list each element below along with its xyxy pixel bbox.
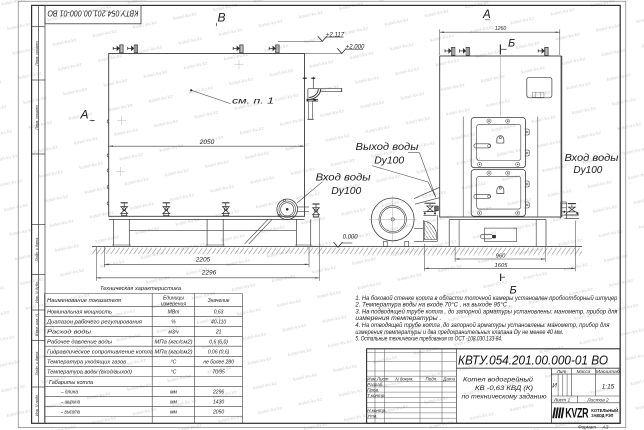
svg-text:2296: 2296 bbox=[201, 270, 217, 277]
svg-text:Значение: Значение bbox=[208, 298, 230, 304]
svg-text:– высота: – высота bbox=[60, 410, 80, 416]
svg-text:°С: °С bbox=[171, 360, 177, 366]
svg-text:°С: °С bbox=[171, 370, 177, 376]
svg-text:МВт: МВт bbox=[168, 310, 180, 316]
svg-text:2296: 2296 bbox=[212, 390, 224, 396]
svg-text:А: А bbox=[80, 108, 89, 122]
svg-text:Вход воды: Вход воды bbox=[565, 153, 620, 164]
svg-text:см. п. 1: см. п. 1 bbox=[232, 96, 274, 106]
svg-text:2205: 2205 bbox=[195, 256, 211, 263]
svg-text:Т.контр.: Т.контр. bbox=[367, 393, 385, 398]
svg-text:Котел водогрейный: Котел водогрейный bbox=[463, 375, 533, 383]
svg-text:м3/ч: м3/ч bbox=[168, 330, 179, 336]
svg-text:Техническая характеристика: Техническая характеристика bbox=[100, 286, 182, 292]
svg-text:Листов 2: Листов 2 bbox=[586, 398, 609, 404]
svg-text:Dy100: Dy100 bbox=[573, 165, 602, 176]
svg-text:0,06 (0,6): 0,06 (0,6) bbox=[208, 350, 230, 356]
svg-text:Масштаб: Масштаб bbox=[596, 369, 620, 374]
svg-text:Пров.: Пров. bbox=[367, 387, 379, 392]
svg-text:Подп. и дата: Подп. и дата bbox=[35, 238, 39, 262]
svg-text:КВТУ.054.201.00.000-01 ВО: КВТУ.054.201.00.000-01 ВО bbox=[458, 353, 608, 368]
svg-text:Н.контр.: Н.контр. bbox=[367, 408, 386, 413]
svg-text:Расход воды: Расход воды bbox=[47, 330, 91, 336]
svg-text:+2.117: +2.117 bbox=[326, 33, 345, 39]
svg-text:Перв. примен.: Перв. примен. bbox=[35, 104, 39, 129]
svg-text:Гидравлическое сопротивление к: Гидравлическое сопротивление котла bbox=[47, 350, 153, 356]
svg-text:КОТЕЛЬНЫЙ: КОТЕЛЬНЫЙ bbox=[591, 408, 618, 413]
svg-text:%: % bbox=[171, 320, 176, 326]
svg-text:3. На подводящей трубе котла: 3. На подводящей трубе котла , до запорн… bbox=[355, 308, 618, 315]
svg-text:Изм.Лист: Изм.Лист bbox=[367, 377, 388, 382]
svg-text:Формат: Формат bbox=[578, 424, 596, 430]
svg-text:Перв. примен.: Перв. примен. bbox=[35, 40, 39, 65]
svg-text:1430: 1430 bbox=[213, 400, 224, 406]
svg-text:2050: 2050 bbox=[212, 410, 224, 416]
svg-text:Подп.: Подп. bbox=[426, 377, 438, 382]
svg-text:МПа (кгс/см2): МПа (кгс/см2) bbox=[155, 340, 193, 346]
svg-text:КВ -0,63 КВД (К): КВ -0,63 КВД (К) bbox=[475, 385, 533, 392]
svg-text:Dy100: Dy100 bbox=[331, 185, 361, 197]
svg-text:Лист 1: Лист 1 bbox=[553, 398, 571, 404]
svg-text:– ширина: – ширина bbox=[60, 400, 80, 406]
svg-text:Номинальная мощность: Номинальная мощность bbox=[47, 310, 112, 316]
svg-text:N докум.: N докум. bbox=[395, 377, 413, 382]
svg-text:Диапазон рабочего регулировани: Диапазон рабочего регулирования bbox=[46, 320, 143, 326]
svg-text:0.000: 0.000 bbox=[343, 235, 359, 241]
svg-text:Инв. N дубл.: Инв. N дубл. bbox=[35, 281, 39, 303]
svg-text:Подп. и дата: Подп. и дата bbox=[35, 352, 39, 376]
svg-text:ЗАВОД РЭП: ЗАВОД РЭП bbox=[591, 413, 613, 418]
svg-text:1260: 1260 bbox=[495, 26, 507, 32]
svg-text:Масса: Масса bbox=[577, 369, 591, 374]
svg-text:2050: 2050 bbox=[199, 139, 215, 146]
svg-text:мм: мм bbox=[170, 390, 177, 396]
svg-text:Дата: Дата bbox=[442, 377, 455, 382]
svg-text:Б: Б bbox=[510, 284, 517, 296]
svg-text:40-110: 40-110 bbox=[211, 320, 226, 326]
svg-text:0,63: 0,63 bbox=[214, 310, 224, 316]
svg-text:1:15: 1:15 bbox=[602, 383, 615, 390]
svg-text:Рабочее давление воды: Рабочее давление воды bbox=[47, 340, 112, 346]
svg-text:Лит: Лит bbox=[556, 369, 567, 374]
svg-text:Б: Б bbox=[508, 37, 515, 49]
svg-text:мм: мм bbox=[170, 410, 177, 416]
svg-text:Температура уходящих газов: Температура уходящих газов bbox=[47, 360, 126, 366]
svg-text:Взам. инв. N: Взам. инв. N bbox=[35, 314, 39, 336]
svg-text:Температура воды (вход/выход): Температура воды (вход/выход) bbox=[47, 370, 132, 376]
svg-text:1. На боковой стенке котла в: 1. На боковой стенке котла в области топ… bbox=[355, 295, 618, 302]
svg-text:А: А bbox=[482, 9, 491, 21]
svg-text:Утв.: Утв. bbox=[367, 414, 377, 419]
svg-text:В: В bbox=[218, 11, 226, 25]
svg-text:Вход воды: Вход воды bbox=[316, 171, 371, 183]
svg-text:КВТУ.054.201.00.000-01 ВО: КВТУ.054.201.00.000-01 ВО bbox=[47, 8, 139, 17]
svg-text:+2.000: +2.000 bbox=[346, 44, 365, 50]
svg-text:измерения: измерения bbox=[161, 301, 186, 307]
svg-text:измерения температуры .: измерения температуры . bbox=[355, 316, 441, 322]
svg-text:И: И bbox=[552, 382, 557, 389]
svg-text:KVZR: KVZR bbox=[565, 406, 588, 421]
svg-text:измерения температуры и два пр: измерения температуры и два предохраните… bbox=[355, 330, 563, 336]
svg-text:А3: А3 bbox=[602, 424, 609, 430]
svg-text:не более 280: не более 280 bbox=[203, 360, 234, 366]
svg-text:Наименование показателя: Наименование показателя bbox=[47, 298, 121, 304]
svg-text:МПа (кгс/см2): МПа (кгс/см2) bbox=[155, 350, 193, 356]
svg-text:– длина: – длина bbox=[60, 390, 78, 396]
svg-text:21: 21 bbox=[215, 330, 222, 336]
svg-text:мм: мм bbox=[170, 400, 177, 406]
svg-text:0,6 (6,0): 0,6 (6,0) bbox=[209, 340, 228, 346]
svg-text:Dy100: Dy100 bbox=[374, 155, 404, 167]
svg-text:2. Температура воды на входе: 2. Температура воды на входе 70°С , на в… bbox=[354, 303, 510, 309]
svg-text:1605: 1605 bbox=[495, 263, 509, 269]
svg-text:5. Остальные технические треб: 5. Остальные технические требования по О… bbox=[355, 337, 502, 343]
svg-text:960: 960 bbox=[496, 254, 506, 260]
svg-text:70/95: 70/95 bbox=[212, 370, 225, 376]
svg-text:Габариты котла: Габариты котла bbox=[49, 380, 93, 386]
svg-text:Выход воды: Выход воды bbox=[356, 141, 419, 153]
svg-text:Инв. N подл.: Инв. N подл. bbox=[35, 394, 39, 416]
svg-text:по техническому заданию: по техническому заданию bbox=[462, 392, 547, 400]
svg-text:4. На отводящей трубе котла ,: 4. На отводящей трубе котла ,до запорной… bbox=[355, 322, 610, 329]
